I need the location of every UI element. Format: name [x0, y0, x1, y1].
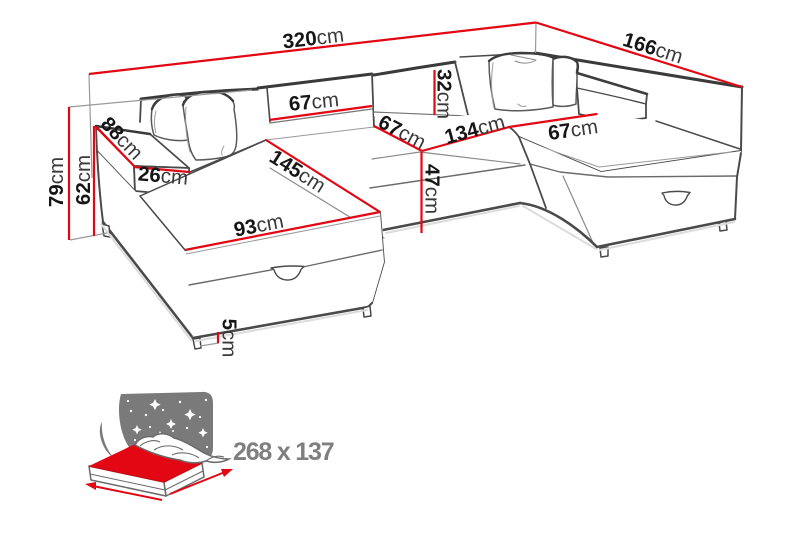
- svg-text:268 x 137: 268 x 137: [233, 438, 334, 466]
- svg-text:5cm: 5cm: [218, 319, 241, 358]
- svg-text:79cm: 79cm: [45, 157, 68, 207]
- svg-text:26cm: 26cm: [137, 162, 189, 189]
- svg-text:32cm: 32cm: [433, 69, 456, 119]
- svg-text:62cm: 62cm: [72, 155, 95, 205]
- svg-text:47cm: 47cm: [421, 164, 444, 214]
- svg-text:67cm: 67cm: [288, 88, 340, 116]
